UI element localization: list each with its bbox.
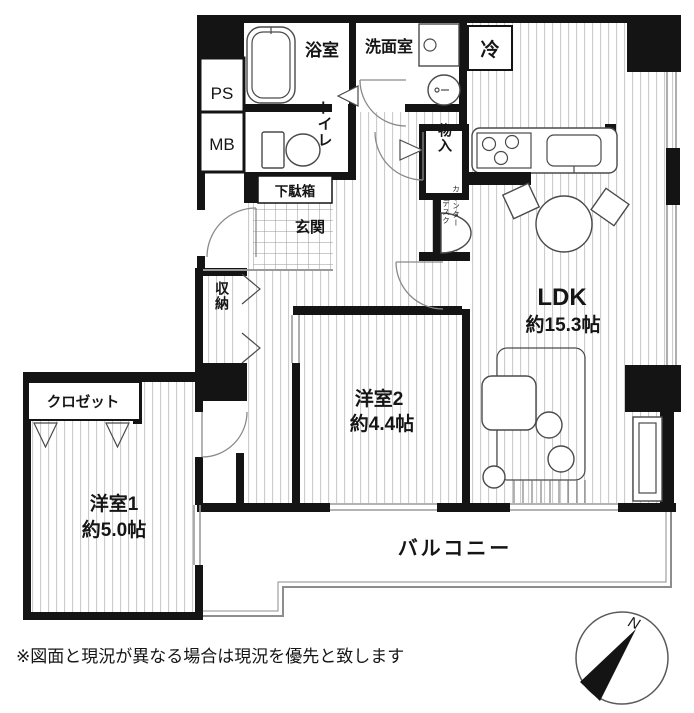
label-ldk-name: LDK: [537, 284, 587, 311]
floor-plan: PS MB 浴室 洗面室 トイレ 物入 冷 下駄箱 玄関 収納 カウンター デス…: [0, 0, 694, 713]
compass-north-label: N: [626, 614, 643, 634]
floor-plan-drawing: PS MB 浴室 洗面室 トイレ 物入 冷 下駄箱 玄関 収納 カウンター デス…: [0, 0, 694, 713]
label-counter-desk-2: デスク: [441, 198, 450, 225]
label-shoe-box: 下駄箱: [275, 183, 316, 199]
tv-board-symbol: [633, 417, 662, 501]
label-closet: クロゼット: [47, 393, 120, 411]
disclaimer-note: ※図面と現況が異なる場合は現況を優先と致します: [16, 647, 404, 666]
label-ldk-size: 約15.3帖: [526, 313, 601, 336]
label-washroom: 洗面室: [365, 37, 413, 56]
label-balcony: バルコニー: [398, 537, 513, 560]
label-toilet: トイレ: [316, 100, 333, 148]
label-bath: 浴室: [305, 40, 339, 60]
label-storage: 収納: [214, 280, 230, 311]
label-room1-name: 洋室1: [90, 492, 139, 515]
room1-door-arc: [202, 412, 247, 457]
washer-pan-symbol: [419, 24, 459, 66]
balcony-fence: [203, 512, 671, 616]
label-refrigerator: 冷: [480, 38, 499, 61]
label-mb: MB: [209, 135, 235, 154]
bathtub-symbol: [247, 27, 295, 103]
bath-door-marker: [338, 86, 358, 106]
compass: N: [576, 612, 668, 704]
label-room2-name: 洋室2: [355, 387, 404, 410]
toilet-symbol: [262, 132, 320, 168]
label-room2-size: 約4.4帖: [350, 412, 414, 435]
label-room1-size: 約5.0帖: [82, 518, 146, 541]
wash-basin-symbol: [428, 75, 460, 105]
label-ps: PS: [211, 84, 234, 103]
label-counter-desk-1: カウンター: [452, 184, 461, 227]
label-entrance: 玄関: [295, 218, 325, 236]
label-storage-mono: 物入: [437, 122, 453, 153]
